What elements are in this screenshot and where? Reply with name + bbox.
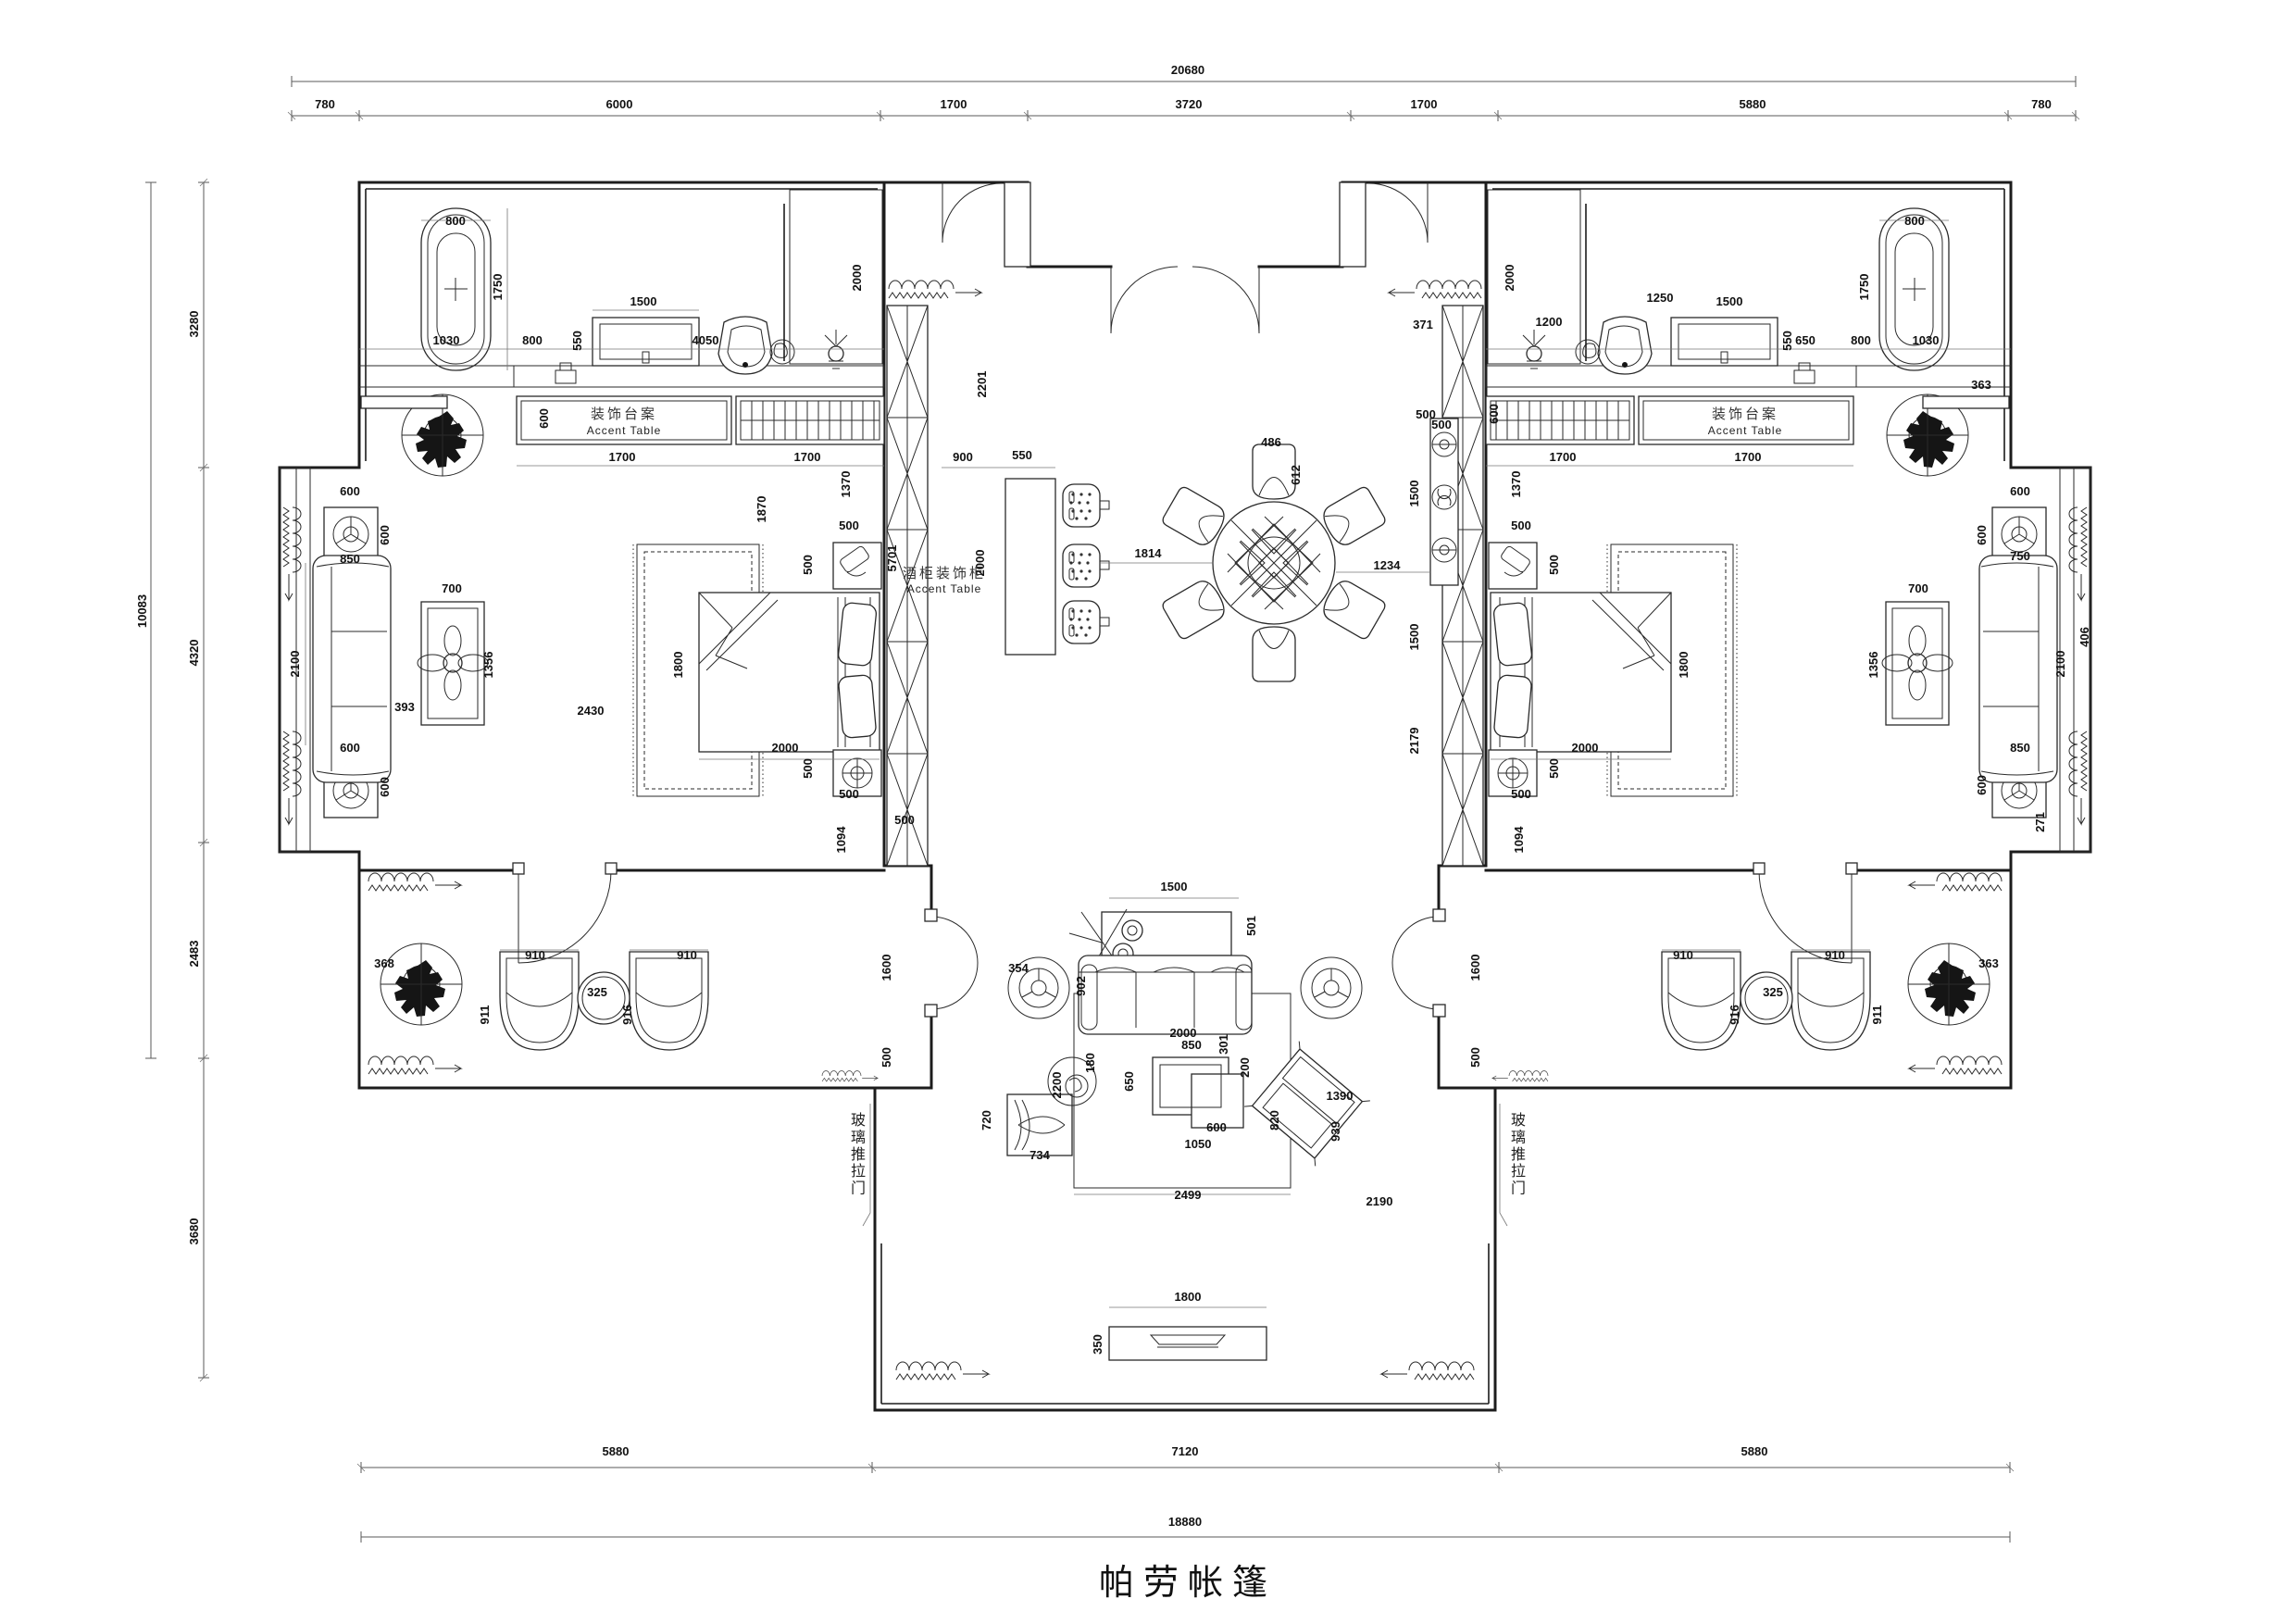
dim-text: 780 (2031, 97, 2052, 111)
dim-text: 3280 (187, 311, 201, 338)
dim-text: 2200 (1050, 1072, 1064, 1099)
label-text: 装饰台案 (1712, 406, 1778, 422)
dim-text: 5880 (1741, 1444, 1768, 1458)
dim-text: 500 (1468, 1047, 1482, 1068)
dim-text: 600 (1975, 775, 1989, 795)
dim-text: 800 (1904, 214, 1925, 228)
dim-text: 720 (980, 1110, 993, 1131)
dim-text: 850 (1181, 1038, 1202, 1052)
dim-text: 500 (801, 758, 815, 779)
dim-text: 500 (894, 813, 915, 827)
dim-text: 7120 (1172, 1444, 1199, 1458)
dim-text: 500 (1511, 518, 1531, 532)
dim-text: 600 (378, 777, 392, 797)
dim-text: 916 (1728, 1005, 1741, 1025)
dim-text: 1030 (1913, 333, 1940, 347)
dim-text: 3720 (1176, 97, 1203, 111)
dim-text: 10083 (135, 594, 149, 628)
dim-text: 850 (340, 552, 360, 566)
dim-text: 1050 (1185, 1137, 1212, 1151)
dim-text: 5701 (885, 545, 899, 572)
door-text: 玻璃推拉门 (1511, 1112, 1526, 1197)
dim-text: 939 (1329, 1121, 1342, 1142)
dim-text: 368 (374, 956, 394, 970)
dim-text: 2100 (288, 651, 302, 678)
dim-text: 1700 (1735, 450, 1762, 464)
dim-text: 1800 (671, 652, 685, 679)
dim-text: 371 (1413, 318, 1433, 331)
dim-text: 550 (1780, 331, 1794, 351)
dim-text: 800 (445, 214, 466, 228)
dim-text: 2201 (975, 371, 989, 398)
dim-text: 2179 (1407, 728, 1421, 755)
dim-text: 1356 (1866, 652, 1880, 679)
terrace (1109, 1327, 1267, 1360)
dim-text: 500 (1547, 758, 1561, 779)
dim-text: 1370 (1509, 471, 1523, 498)
dim-text: 1200 (1536, 315, 1563, 329)
dim-text: 5880 (603, 1444, 630, 1458)
dim-text: 1500 (1716, 294, 1743, 308)
plan-title: 帕劳帐篷 (1099, 1564, 1277, 1603)
dim-text: 600 (1487, 404, 1501, 424)
dim-text: 1750 (491, 274, 505, 301)
dim-text: 850 (2010, 741, 2030, 755)
dim-text: 500 (839, 787, 859, 801)
dim-text: 20680 (1171, 63, 1204, 77)
dim-text: 1870 (755, 496, 768, 523)
dim-text: 600 (1206, 1120, 1227, 1134)
dim-text: 500 (1511, 787, 1531, 801)
dim-text: 3680 (187, 1218, 201, 1245)
dim-text: 6000 (606, 97, 633, 111)
dim-text: 301 (1217, 1034, 1230, 1055)
dim-text: 1800 (1175, 1290, 1202, 1304)
dim-text: 1700 (1411, 97, 1438, 111)
dim-text: 363 (1978, 956, 1999, 970)
dim-text: 2000 (1503, 265, 1516, 292)
dim-text: 916 (620, 1005, 634, 1025)
dim-text: 501 (1244, 916, 1258, 936)
dim-text: 2499 (1175, 1188, 1202, 1202)
dim-text: 200 (1238, 1057, 1252, 1078)
en-text: Accent Table (587, 424, 662, 437)
dim-text: 486 (1261, 435, 1281, 449)
dim-text: 180 (1083, 1053, 1097, 1073)
dim-text: 1234 (1374, 558, 1402, 572)
dim-text: 5880 (1740, 97, 1766, 111)
dim-text: 1500 (1407, 481, 1421, 507)
dim-text: 1500 (1407, 624, 1421, 651)
dim-text: 600 (340, 741, 360, 755)
dim-text: 1800 (1677, 652, 1691, 679)
dim-text: 1500 (1161, 880, 1188, 893)
dim-text: 1600 (880, 955, 893, 981)
dim-text: 910 (525, 948, 545, 962)
dim-text: 700 (1908, 581, 1928, 595)
dim-text: 2190 (1366, 1194, 1393, 1208)
dim-text: 910 (677, 948, 697, 962)
dim-text: 800 (1851, 333, 1871, 347)
bar-counter (1005, 479, 1055, 655)
dim-text: 1500 (630, 294, 657, 308)
dim-text: 393 (394, 700, 415, 714)
dim-text: 1814 (1135, 546, 1163, 560)
dim-text: 650 (1795, 333, 1816, 347)
dim-text: 18880 (1168, 1515, 1202, 1529)
dim-text: 910 (1825, 948, 1845, 962)
dim-text: 1600 (1468, 955, 1482, 981)
dim-text: 911 (478, 1006, 492, 1025)
dim-text: 780 (315, 97, 335, 111)
dim-text: 820 (1267, 1110, 1281, 1131)
dim-text: 1094 (1512, 826, 1526, 854)
dim-text: 2100 (2053, 651, 2067, 678)
floor-plan-page: 2068078060001700372017005880780100833280… (0, 0, 2296, 1624)
dim-text: 1030 (433, 333, 460, 347)
dim-text: 550 (1012, 448, 1032, 462)
dim-text: 1356 (481, 652, 495, 679)
dim-text: 271 (2033, 812, 2047, 832)
dim-text: 600 (340, 484, 360, 498)
en-text: Accent Table (907, 582, 982, 595)
dim-text: 4320 (187, 640, 201, 667)
dim-text: 1700 (609, 450, 636, 464)
dim-text: 734 (1029, 1148, 1050, 1162)
dim-text: 800 (522, 333, 543, 347)
dim-text: 1370 (839, 471, 853, 498)
dim-text: 750 (2010, 549, 2030, 563)
dim-text: 1700 (1550, 450, 1577, 464)
dim-text: 650 (1122, 1071, 1136, 1092)
dim-text: 600 (2010, 484, 2030, 498)
dim-text: 2000 (1572, 741, 1599, 755)
dim-text: 600 (537, 408, 551, 429)
dim-text: 1094 (834, 826, 848, 854)
dim-text: 2000 (850, 265, 864, 292)
dim-text: 700 (442, 581, 462, 595)
dim-text: 1700 (941, 97, 967, 111)
dim-text: 363 (1971, 378, 1991, 392)
dim-text: 550 (570, 331, 584, 351)
label-text: 装饰台案 (591, 406, 657, 422)
dim-text: 600 (1975, 525, 1989, 545)
dim-text: 354 (1008, 961, 1029, 975)
dim-text: 1390 (1327, 1089, 1354, 1103)
dim-text: 1750 (1857, 274, 1871, 301)
living-sofa (1079, 956, 1252, 1034)
dim-text: 500 (1547, 555, 1561, 575)
dim-text: 911 (1870, 1006, 1884, 1025)
dim-text: 1250 (1647, 291, 1674, 305)
dim-text: 600 (378, 525, 392, 545)
dim-text: 4050 (693, 333, 719, 347)
dim-text: 500 (1416, 407, 1436, 421)
dim-text: 350 (1091, 1334, 1104, 1355)
dim-text: 902 (1074, 976, 1088, 996)
en-text: Accent Table (1708, 424, 1783, 437)
dim-text: 910 (1673, 948, 1693, 962)
dim-text: 2483 (187, 941, 201, 968)
dim-text: 500 (839, 518, 859, 532)
dim-text: 500 (880, 1047, 893, 1068)
door-text: 玻璃推拉门 (851, 1112, 866, 1197)
dim-text: 2430 (578, 704, 605, 718)
dim-text: 1700 (794, 450, 821, 464)
dim-text: 500 (801, 555, 815, 575)
right-fixture-strip (1430, 418, 1458, 585)
dim-text: 406 (2078, 627, 2091, 647)
floor-plan-svg: 2068078060001700372017005880780100833280… (0, 0, 2296, 1624)
dim-text: 900 (953, 450, 973, 464)
dim-text: 612 (1289, 465, 1303, 485)
label-text: 酒柜装饰柜 (903, 566, 986, 581)
tv-console (1109, 1327, 1267, 1360)
dim-text: 2000 (772, 741, 799, 755)
dim-text: 325 (587, 985, 607, 999)
dim-text: 325 (1763, 985, 1783, 999)
